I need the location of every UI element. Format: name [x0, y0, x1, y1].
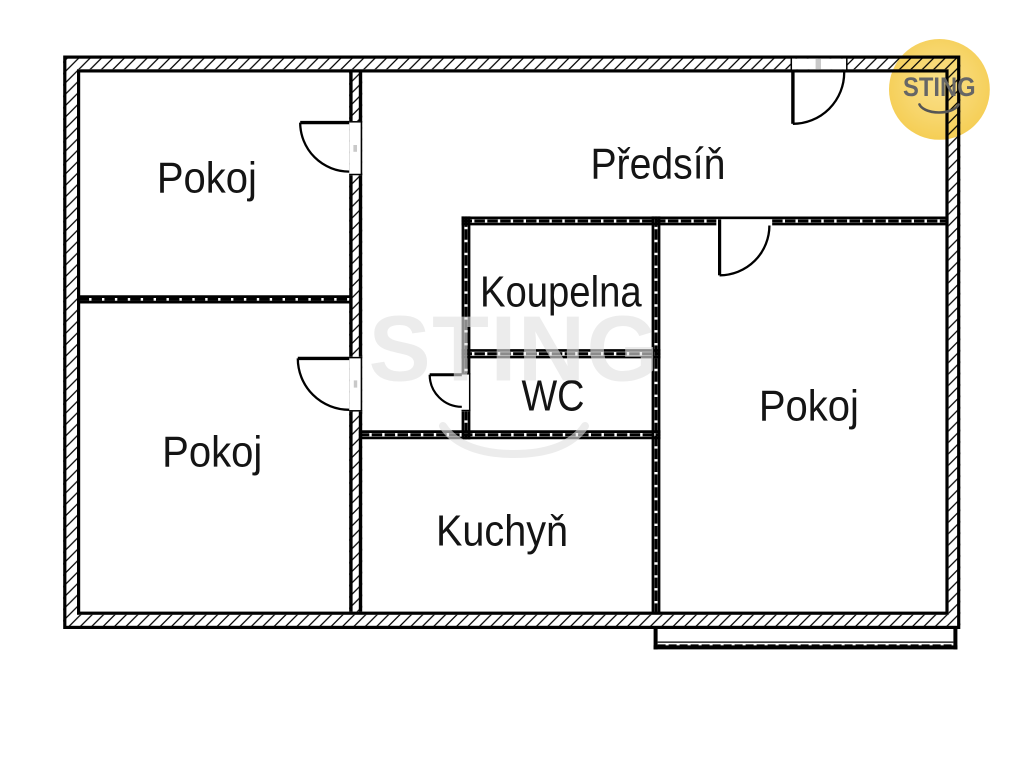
svg-text:STING: STING — [369, 297, 661, 401]
svg-text:Kuchyň: Kuchyň — [436, 506, 568, 555]
svg-text:Pokoj: Pokoj — [759, 381, 859, 430]
svg-text:Pokoj: Pokoj — [162, 427, 262, 476]
svg-text:Předsíň: Předsíň — [590, 138, 725, 188]
svg-text:STING: STING — [903, 73, 976, 103]
svg-text:Pokoj: Pokoj — [157, 153, 257, 202]
